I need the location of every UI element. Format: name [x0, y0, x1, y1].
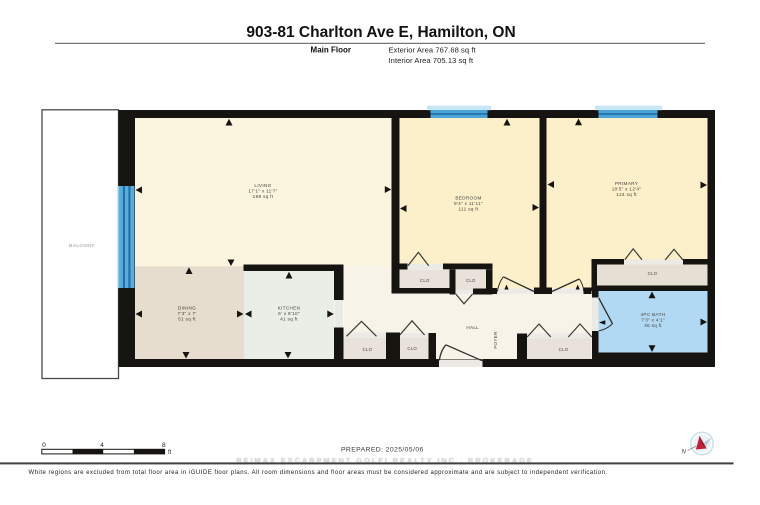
- svg-text:BEDROOM: BEDROOM: [455, 196, 481, 201]
- svg-text:HALL: HALL: [466, 325, 479, 330]
- svg-text:7'3" x 4'1": 7'3" x 4'1": [641, 318, 665, 323]
- svg-text:4: 4: [100, 442, 104, 449]
- svg-text:CLO: CLO: [559, 347, 569, 352]
- svg-text:N: N: [682, 450, 687, 456]
- svg-text:198 sq ft: 198 sq ft: [253, 194, 274, 199]
- svg-text:6' x 8'10": 6' x 8'10": [278, 311, 300, 316]
- svg-text:51 sq ft: 51 sq ft: [178, 317, 196, 322]
- svg-text:BALCONY: BALCONY: [69, 243, 95, 249]
- svg-text:PREPARED: 2025/05/06: PREPARED: 2025/05/06: [341, 447, 424, 454]
- svg-text:CLO: CLO: [420, 278, 430, 283]
- svg-text:0: 0: [42, 442, 46, 449]
- svg-text:111 sq ft: 111 sq ft: [459, 207, 479, 212]
- svg-text:7'3" x 7': 7'3" x 7': [178, 311, 197, 316]
- svg-text:LIVING: LIVING: [254, 183, 271, 188]
- svg-text:124 sq ft: 124 sq ft: [616, 192, 637, 197]
- svg-text:White regions are excluded fro: White regions are excluded from total fl…: [29, 470, 608, 476]
- svg-text:41 sq ft: 41 sq ft: [280, 317, 298, 322]
- svg-text:36 sq ft: 36 sq ft: [644, 323, 662, 328]
- svg-text:PRIMARY: PRIMARY: [615, 181, 639, 186]
- svg-text:KITCHEN: KITCHEN: [278, 306, 301, 311]
- svg-text:DINING: DINING: [178, 306, 196, 311]
- svg-text:FOYER: FOYER: [493, 331, 498, 349]
- svg-text:CLO: CLO: [466, 278, 476, 283]
- svg-text:CLO: CLO: [363, 347, 373, 352]
- svg-text:9'4" x 11'11": 9'4" x 11'11": [454, 201, 483, 206]
- svg-text:ft: ft: [168, 450, 172, 456]
- svg-text:Main Floor: Main Floor: [311, 46, 351, 55]
- svg-text:Interior Area 705.13 sq ft: Interior Area 705.13 sq ft: [389, 56, 475, 65]
- svg-text:Exterior Area 767.68 sq ft: Exterior Area 767.68 sq ft: [389, 46, 477, 55]
- svg-text:CLO: CLO: [407, 346, 417, 351]
- svg-text:17'1" x 11'7": 17'1" x 11'7": [248, 189, 277, 194]
- svg-text:8: 8: [162, 442, 166, 449]
- svg-text:903-81 Charlton Ave E, Hamilto: 903-81 Charlton Ave E, Hamilton, ON: [246, 24, 515, 41]
- svg-text:CLO: CLO: [648, 271, 658, 276]
- svg-text:4PC BATH: 4PC BATH: [641, 312, 666, 317]
- svg-text:10'5" x 12'4": 10'5" x 12'4": [612, 187, 642, 192]
